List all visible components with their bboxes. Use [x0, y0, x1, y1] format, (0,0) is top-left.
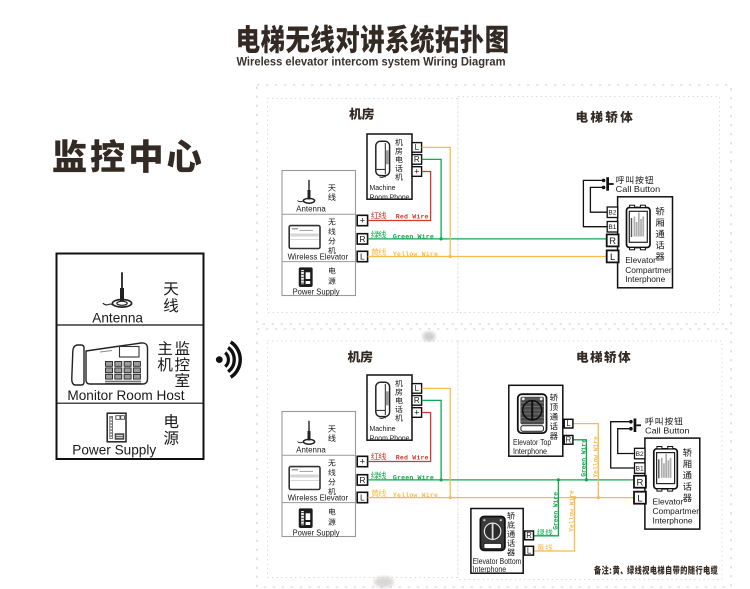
svg-text:R: R: [636, 477, 643, 488]
svg-text:+: +: [360, 457, 366, 468]
svg-text:R: R: [566, 435, 572, 444]
svg-text:Wireless Elevator: Wireless Elevator: [288, 493, 349, 502]
svg-text:Red Wire: Red Wire: [396, 454, 429, 461]
svg-text:Antenna: Antenna: [296, 445, 326, 454]
svg-text:Interphone: Interphone: [625, 274, 665, 284]
svg-text:Elevator Top: Elevator Top: [513, 438, 552, 447]
svg-text:R: R: [359, 475, 365, 485]
svg-text:R: R: [609, 236, 616, 247]
svg-text:Yellow Wire: Yellow Wire: [592, 436, 599, 478]
svg-text:Green Wire: Green Wire: [393, 234, 434, 241]
svg-text:+: +: [360, 216, 366, 227]
svg-text:Call Button: Call Button: [616, 184, 661, 194]
svg-text:Green Wire: Green Wire: [580, 439, 587, 477]
svg-text:Room Phone: Room Phone: [370, 192, 410, 201]
svg-text:Yellow Wire: Yellow Wire: [569, 490, 576, 532]
svg-text:Interphone: Interphone: [513, 447, 547, 456]
svg-text:Yellow Wire: Yellow Wire: [393, 251, 438, 258]
svg-text:Call Button: Call Button: [645, 426, 690, 436]
svg-text:Room Phone: Room Phone: [370, 433, 410, 442]
svg-text:Antenna: Antenna: [296, 204, 326, 213]
svg-text:L: L: [527, 546, 532, 555]
svg-text:Interphone: Interphone: [473, 565, 507, 574]
svg-text:Machine: Machine: [370, 183, 396, 192]
svg-text:R: R: [414, 155, 420, 164]
svg-text:Power Supply: Power Supply: [293, 529, 340, 538]
svg-text:+: +: [414, 408, 419, 418]
svg-text:Interphone: Interphone: [653, 515, 693, 525]
svg-text:R: R: [414, 396, 420, 405]
svg-text:B1: B1: [636, 466, 644, 473]
svg-text:L: L: [610, 252, 615, 263]
svg-text:Wireless Elevator: Wireless Elevator: [288, 252, 349, 261]
svg-text:Red Wire: Red Wire: [396, 213, 429, 220]
svg-text:L: L: [360, 252, 365, 262]
svg-text:B2: B2: [608, 210, 616, 217]
svg-text:Green Wire: Green Wire: [393, 475, 434, 482]
svg-text:B2: B2: [636, 451, 644, 458]
svg-text:L: L: [415, 384, 420, 393]
svg-text:Elevator: Elevator: [653, 496, 684, 506]
svg-text:Monitor Room Host: Monitor Room Host: [67, 388, 184, 403]
svg-text:Power Supply: Power Supply: [72, 443, 156, 458]
svg-text:Antenna: Antenna: [92, 311, 143, 326]
svg-text:Green Wire: Green Wire: [553, 492, 560, 530]
svg-text:L: L: [415, 143, 420, 152]
svg-text:Elevator: Elevator: [625, 255, 656, 265]
svg-text:R: R: [526, 531, 532, 540]
svg-text:B1: B1: [608, 224, 616, 231]
svg-text:Power Supply: Power Supply: [293, 288, 340, 297]
svg-text:Wireless elevator intercom sys: Wireless elevator intercom system Wiring…: [237, 55, 506, 69]
svg-text:+: +: [414, 167, 419, 177]
svg-text:L: L: [360, 493, 365, 503]
svg-text:L: L: [566, 419, 571, 428]
svg-text:Machine: Machine: [370, 424, 396, 433]
svg-text:Yellow Wire: Yellow Wire: [393, 492, 438, 499]
svg-text:R: R: [359, 234, 365, 244]
svg-text:L: L: [637, 493, 642, 504]
